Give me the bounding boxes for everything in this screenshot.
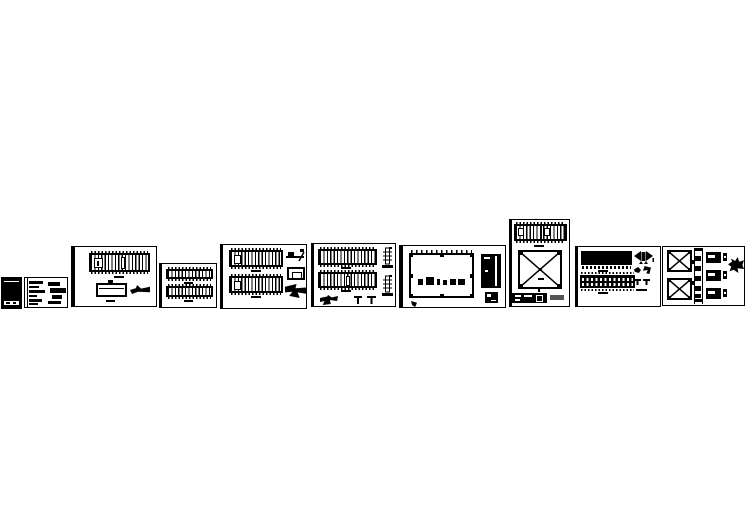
member-bar — [706, 270, 721, 281]
note-text-line — [29, 303, 38, 305]
cover-footer-mark — [6, 302, 10, 304]
corner-gusset — [667, 278, 671, 282]
title-mark — [251, 296, 261, 298]
cell-dot — [724, 274, 726, 276]
sheet-double-truss[interactable] — [159, 263, 217, 308]
sheet-truss-details[interactable] — [220, 244, 307, 309]
grid-node — [409, 253, 413, 257]
binding-margin — [400, 246, 403, 307]
anchor-detail-icon — [354, 296, 362, 304]
note-text-block — [52, 295, 62, 299]
corner-gusset — [688, 296, 692, 300]
truss-elevation-band — [229, 276, 283, 293]
foundation-detail-box — [96, 283, 127, 297]
truss-elevation-band — [166, 286, 213, 297]
cover-rule — [4, 281, 19, 282]
perforated-band — [580, 275, 635, 288]
end-panel-box — [234, 255, 241, 264]
note-blob — [550, 295, 564, 300]
schedule-cell — [536, 295, 543, 302]
binding-margin — [160, 264, 162, 307]
member-schedule-bar — [706, 252, 727, 263]
truss-elevation-band — [318, 272, 377, 288]
member-bar — [706, 288, 721, 299]
title-mark — [184, 300, 193, 302]
door-panel-detail — [481, 254, 501, 288]
corner-gusset — [557, 251, 561, 255]
note-text-line — [29, 286, 39, 288]
cell-dot — [724, 292, 726, 294]
note-text-line — [29, 295, 37, 297]
bar-slot — [708, 291, 715, 294]
end-panel-box — [94, 258, 103, 268]
title-mark — [598, 292, 608, 294]
plan-symbol — [443, 280, 447, 285]
title-mark — [636, 289, 647, 291]
column-segment — [695, 266, 701, 271]
center-node — [539, 268, 542, 271]
corner-gusset — [519, 284, 523, 288]
clamp-detail-glyph — [728, 257, 744, 273]
x-brace-detail — [667, 250, 692, 272]
box-notch — [487, 294, 491, 297]
plan-symbol — [458, 279, 465, 285]
bar-end-cell — [723, 289, 727, 297]
grid-node — [409, 294, 413, 298]
truss-elevation-band — [89, 253, 150, 272]
mid-panel-gap — [121, 257, 125, 269]
column-cleat — [692, 281, 694, 285]
brace-label-mark — [538, 278, 544, 280]
margin-line — [27, 278, 28, 307]
x-brace-diagonals-icon — [669, 280, 690, 298]
member-schedule-bar — [706, 270, 727, 281]
note-text-line — [29, 299, 42, 302]
gusset-detail-blob — [285, 284, 306, 298]
opening-row — [582, 278, 633, 281]
binding-margin — [312, 244, 314, 306]
note-text-block — [48, 282, 60, 286]
title-mark — [114, 276, 124, 278]
anchor-detail-icon — [634, 279, 641, 285]
sheet-truss-elevation[interactable] — [71, 246, 157, 307]
bar-slot — [708, 273, 715, 276]
box-mark — [491, 300, 496, 301]
x-brace-diagonals-icon — [669, 252, 690, 270]
detail-line — [99, 288, 124, 289]
sheet-framing-plan[interactable] — [399, 245, 506, 308]
column-segment — [695, 276, 701, 281]
schedule-dash — [524, 295, 532, 297]
anchor-detail-icon — [643, 279, 650, 285]
grid-node — [470, 253, 474, 257]
member-bar — [706, 252, 721, 263]
x-bracing-diagram — [518, 250, 562, 289]
note-text-block — [48, 301, 61, 304]
panel-stripe — [495, 256, 497, 286]
title-mark — [341, 290, 351, 292]
mid-panel-gap — [346, 276, 350, 286]
grid-node — [440, 253, 444, 257]
column-segment — [695, 286, 701, 291]
corner-gusset — [519, 251, 523, 255]
inner-plate — [292, 272, 302, 279]
small-box-detail — [485, 292, 498, 303]
column-segment — [695, 294, 701, 298]
truss-elevation-band — [318, 249, 377, 265]
end-panel-mark — [97, 261, 99, 266]
plan-symbol — [437, 279, 440, 285]
title-mark — [534, 245, 544, 247]
sheet-cover[interactable] — [1, 277, 22, 309]
note-text-line — [29, 290, 45, 293]
corner-gusset — [667, 250, 671, 254]
title-mark — [251, 270, 261, 272]
schedule-dash — [515, 299, 520, 301]
corner-gusset — [667, 268, 671, 272]
truss-elevation-band — [229, 250, 283, 267]
bowtie-hardware-icon — [633, 250, 654, 264]
column-cleat — [692, 260, 694, 264]
binding-margin — [221, 245, 223, 308]
sheet-panel-elevations[interactable] — [575, 246, 661, 307]
tick-mark — [538, 289, 540, 292]
joint-detail-icon — [285, 248, 306, 263]
framing-plan-outline — [409, 253, 474, 298]
stub-mark — [108, 280, 113, 285]
end-panel-box — [544, 228, 550, 236]
cover-footer-mark — [13, 302, 16, 304]
plan-note-mark — [411, 301, 417, 307]
x-brace-detail — [667, 278, 692, 300]
cover-footer-band — [4, 301, 19, 305]
plan-symbol — [426, 277, 434, 285]
sheet-truss-columns[interactable] — [311, 243, 396, 307]
gusset-detail-blob — [320, 295, 338, 305]
schedule-bar — [512, 293, 547, 303]
sheet-notes[interactable] — [24, 277, 68, 308]
title-mark — [341, 267, 351, 269]
segmented-column-detail — [694, 248, 703, 304]
grid-node — [470, 294, 474, 298]
hook-glyph — [634, 267, 641, 273]
plan-symbol — [418, 279, 423, 285]
panel-mark — [484, 257, 490, 259]
column-section-icon — [381, 275, 394, 299]
sheet-bracing-elevation[interactable] — [509, 219, 570, 307]
member-schedule-bar — [706, 288, 727, 299]
title-mark — [106, 300, 115, 302]
mid-divider — [540, 226, 542, 239]
hook-glyph — [643, 266, 651, 274]
cell-dot — [724, 256, 726, 258]
column-cap — [694, 248, 702, 251]
bar-end-cell — [723, 253, 727, 261]
column-segment — [695, 256, 701, 261]
binding-margin — [576, 247, 578, 306]
grid-node — [440, 294, 444, 298]
bar-slot — [708, 255, 715, 258]
note-text-block — [50, 288, 66, 293]
truss-elevation-band — [166, 269, 213, 279]
leader-note-blob — [130, 285, 150, 294]
column-section-icon — [381, 247, 394, 271]
panel-mark — [485, 270, 488, 272]
drawing-set-canvas — [0, 0, 749, 530]
grid-node — [409, 274, 413, 278]
corner-gusset — [688, 268, 692, 272]
corner-gusset — [688, 250, 692, 254]
sheet-bracing-details[interactable] — [662, 246, 745, 306]
end-panel-box — [518, 228, 524, 236]
plan-symbol — [450, 279, 456, 285]
deck-band — [581, 251, 632, 265]
column-cap — [694, 299, 702, 302]
anchor-detail-icon — [367, 296, 376, 304]
corner-gusset — [557, 284, 561, 288]
corner-gusset — [667, 296, 671, 300]
binding-margin — [72, 247, 75, 306]
truss-elevation-band — [514, 224, 567, 241]
plate-detail-box — [287, 267, 305, 280]
grid-node — [470, 274, 474, 278]
bar-end-cell — [723, 271, 727, 279]
schedule-dash — [515, 295, 521, 297]
opening-row — [582, 283, 633, 286]
end-panel-box — [234, 281, 241, 290]
note-text-line — [29, 281, 43, 284]
